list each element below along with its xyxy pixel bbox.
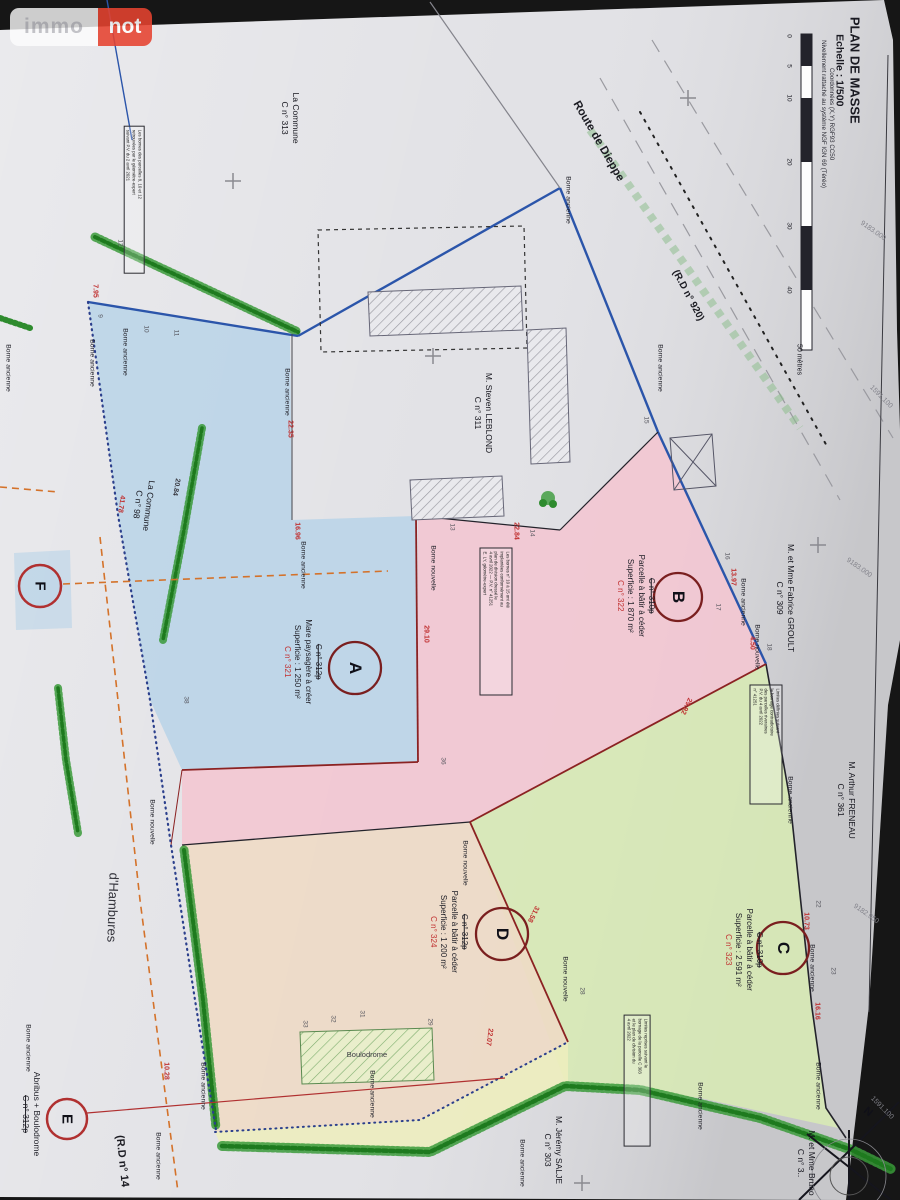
owner-salje-parcel: C n° 303 (542, 1075, 553, 1200)
parcel-b-old-number: C n° 310p (645, 530, 655, 662)
measurement-label: 16.96 (294, 522, 301, 540)
scale-tick: 40 (786, 286, 793, 293)
measurement-label: 20.84 (171, 478, 181, 496)
measurement-label: 16.16 (814, 1002, 821, 1020)
owner-salje-name: M. Jérémy SALJE (553, 1075, 564, 1200)
measurement-label: 7.95 (92, 284, 99, 298)
survey-note-line: 4 avril 2022 (625, 1019, 631, 1143)
parcel-c-new-number: C n° 323 (722, 884, 732, 1016)
measurement-label: 41.78 (116, 495, 125, 513)
measurement-label: 31.58 (526, 905, 540, 924)
parcel-a-description: Mare paysagère à créer (302, 596, 312, 728)
parcel-d-description: Parcelle à bâtir à céder (448, 866, 458, 998)
survey-note-line: plan de division dressé le (493, 551, 499, 691)
survey-note-line: implantées conformément au (499, 551, 505, 691)
survey-note-line: Les bornes des parcelles 8, 10 et 12 (137, 130, 143, 270)
point-number: 38 (183, 696, 190, 703)
grid-coordinate-label: 9182.950 (852, 903, 880, 925)
measurement-label: 29.10 (423, 625, 430, 643)
survey-note-4: Limites reprises suivant lebornage de la… (623, 1015, 650, 1147)
point-number: 28 (579, 987, 586, 994)
borne-label: Borne ancienne (697, 1082, 704, 1130)
coordinate-system: Coordonnées (X,Y) RGF93 CC50 (827, 9, 835, 219)
borne-label: Borne ancienne (25, 1024, 32, 1072)
survey-note-line: Les bornes n° 10 à 15 ont été (505, 551, 511, 691)
survey-note-line: suivant P.V. du 2 avril 2021 (125, 130, 131, 270)
survey-note-1: Les bornes des parcelles 8, 10 et 12retr… (123, 126, 144, 274)
measurement-label: 13.97 (730, 568, 737, 586)
borne-label: Borne ancienne (519, 1139, 526, 1187)
owner-leblond-parcel: C n° 311 (472, 338, 483, 488)
coordinate-system-block: Coordonnées (X,Y) RGF93 CC50 Nivellement… (819, 9, 835, 219)
north-letter: N (861, 1105, 875, 1119)
parcel-a-area: Superficie : 1 250 m² (292, 596, 302, 728)
survey-note-line: retrouvées par le géomètre-expert (131, 130, 137, 270)
survey-note-line: E. LY, géomètre-expert (482, 551, 488, 691)
owner-freneau-name: M. Arthur FRENEAU (846, 725, 857, 875)
survey-note-line: Limites reprises suivant le (643, 1019, 649, 1143)
owner-bruno-parcel: C n° 3.. (795, 1088, 806, 1200)
parcel-c-description: Parcelle à bâtir à céder (743, 884, 753, 1016)
survey-note-3: Limites définies suivantle bornage contr… (750, 684, 783, 804)
labels-layer: PLAN DE MASSE Echelle : 1/500 Coordonnée… (0, 0, 900, 1200)
point-number: 33 (302, 1020, 309, 1027)
point-number: 36 (440, 757, 447, 764)
measurement-label: 22.07 (484, 1028, 493, 1046)
borne-label: Borne ancienne (787, 776, 794, 824)
borne-label: Borne nouvelle (562, 956, 569, 1001)
borne-label: Borne ancienne (155, 1132, 162, 1180)
borne-label: Borne ancienne (284, 368, 291, 416)
point-number: 11 (173, 330, 180, 337)
parcel-a-label-block: C n° 312p Mare paysagère à créer Superfi… (281, 596, 323, 728)
point-number: 13 (449, 523, 456, 530)
scale-tick: 30 (786, 222, 793, 229)
borne-label: Borne ancienne (122, 328, 129, 376)
borne-label: Borne ancienne (809, 944, 816, 992)
immonot-logo: immo not (10, 8, 152, 46)
owner-leblond-name: M. Steven LEBLOND (483, 338, 494, 488)
parcel-a-old-number: C n° 312p (312, 596, 322, 728)
borne-label: Borne ancienne (200, 1062, 207, 1110)
point-number: 15 (643, 416, 650, 423)
borne-label: Borne ancienne (300, 541, 307, 589)
immonot-logo-not: not (98, 8, 152, 46)
point-number: 29 (427, 1018, 434, 1025)
commune-313: La Commune C n° 313 (279, 43, 301, 193)
grid-coordinate-label: 9183.000 (859, 220, 887, 242)
parcel-d-letter: D (492, 928, 512, 940)
survey-note-line: 4 avril 2022 — P.V. n° 41251 (487, 551, 493, 691)
road-number-rd920: (R.D n° 920) (659, 248, 717, 342)
parcel-c-letter: C (773, 942, 793, 954)
title-block: PLAN DE MASSE Echelle : 1/500 (832, 0, 863, 140)
grid-coordinate-label: 1591.100 (868, 384, 894, 410)
commune-98: La Commune C n° 98 (123, 429, 163, 581)
scale-tick: 5 (786, 64, 793, 68)
measurement-label: 10.28 (163, 1062, 170, 1080)
grid-coordinate-label: 9183.000 (845, 557, 873, 579)
borne-label: Borne ancienne (815, 1062, 822, 1110)
borne-label: Borne ancienne (657, 344, 664, 392)
marker-e-letter: E (59, 1114, 76, 1124)
road-name-hambures: d'Hambures (101, 847, 122, 968)
abribus-label: Abribus + Boulodrome (31, 1049, 42, 1179)
survey-note-2: Les bornes n° 10 à 15 ont étéimplantées … (480, 547, 513, 695)
survey-note-line: le bornage contradictoire (769, 688, 775, 800)
owner-groult-name: M. et Mme Fabrice GROULT (785, 523, 796, 673)
scale-tick: 20 (786, 158, 793, 165)
boulodrome-label: Boulodrome (325, 1050, 409, 1059)
borne-label: Borne ancienne (369, 1070, 376, 1118)
point-number: 9 (97, 314, 104, 318)
owner-groult-parcel: C n° 309 (774, 523, 785, 673)
point-number: 22 (815, 900, 822, 907)
scale-tick: 10 (786, 94, 793, 101)
borne-label: Borne nouvelle (149, 799, 156, 844)
measurement-label: 10.73 (803, 912, 810, 930)
survey-note-line: bornage de la parcelle C 303 (637, 1019, 643, 1143)
owner-groult: M. et Mme Fabrice GROULT C n° 309 (774, 523, 796, 673)
commune-313-name: La Commune (290, 43, 301, 193)
survey-note-line: des parcelles riveraines (763, 688, 769, 800)
parcel-d-new-number: C n° 324 (427, 866, 437, 998)
point-number: 12 (117, 239, 124, 246)
borne-label: Borne nouvelle (462, 840, 469, 885)
parcel-b-new-number: C n° 322 (614, 530, 624, 662)
owner-freneau: M. Arthur FRENEAU C n° 361 (835, 725, 857, 875)
survey-note-line: Limites définies suivant (775, 688, 781, 800)
borne-label: Borne ancienne (5, 344, 12, 392)
parcel-b-letter: B (668, 591, 688, 603)
marker-f-letter: F (32, 581, 49, 590)
borne-label: Borne ancienne (740, 578, 747, 626)
immonot-logo-immo: immo (10, 8, 98, 46)
point-number: 17 (715, 603, 722, 610)
measurement-label: 29.92 (679, 697, 693, 716)
borne-label: Borne ancienne (89, 339, 96, 387)
parcel-a-new-number: C n° 321 (281, 596, 291, 728)
parcel-b-label-block: C n° 310p Parcelle à bâtir à céder Super… (614, 530, 656, 662)
owner-salje: M. Jérémy SALJE C n° 303 (542, 1075, 564, 1200)
road-number-rd14: (R.D n° 14 (110, 1116, 134, 1200)
point-number: 31 (359, 1010, 366, 1017)
survey-note-line: P.V. du 4 avril 2022 (757, 688, 763, 800)
borne-label: Borne ancienne (565, 176, 572, 224)
survey-note-line: n° 41251 (752, 688, 758, 800)
parcel-b-area: Superficie : 1 870 m² (625, 530, 635, 662)
owner-freneau-parcel: C n° 361 (835, 725, 846, 875)
point-number: 14 (529, 529, 536, 536)
point-number: 32 (330, 1015, 337, 1022)
parcel-d-area: Superficie : 1 200 m² (438, 866, 448, 998)
measurement-label: 22.35 (287, 420, 294, 438)
point-number: 23 (830, 967, 837, 974)
parcel-a-letter: A (345, 662, 365, 674)
plan-title: PLAN DE MASSE (845, 0, 862, 140)
point-number: 18 (766, 643, 773, 650)
measurement-label: 4.50 (749, 636, 756, 650)
survey-note-line: et le plan de division du (631, 1019, 637, 1143)
leveling-system: Nivellement rattaché au système NGF IGN … (819, 9, 827, 219)
parcel-b-description: Parcelle à bâtir à céder (635, 530, 645, 662)
scale-tick: 0 (786, 34, 793, 38)
commune-313-parcel: C n° 313 (279, 43, 290, 193)
point-number: 16 (724, 552, 731, 559)
parcel-c-old-number: C n° 310p (753, 884, 763, 1016)
parcel-c-area: Superficie : 2 591 m² (733, 884, 743, 1016)
parcel-c-label-block: C n° 310p Parcelle à bâtir à céder Super… (722, 884, 764, 1016)
measurement-label: 22.84 (513, 522, 520, 540)
scale-end-label: 50 mètres (794, 330, 803, 390)
owner-leblond: M. Steven LEBLOND C n° 311 (472, 338, 494, 488)
borne-label: Borne nouvelle (430, 545, 437, 590)
plan-de-masse-photo: immo not PLAN DE MASSE Echelle : 1/500 C… (0, 0, 900, 1200)
point-number: 10 (143, 325, 150, 332)
